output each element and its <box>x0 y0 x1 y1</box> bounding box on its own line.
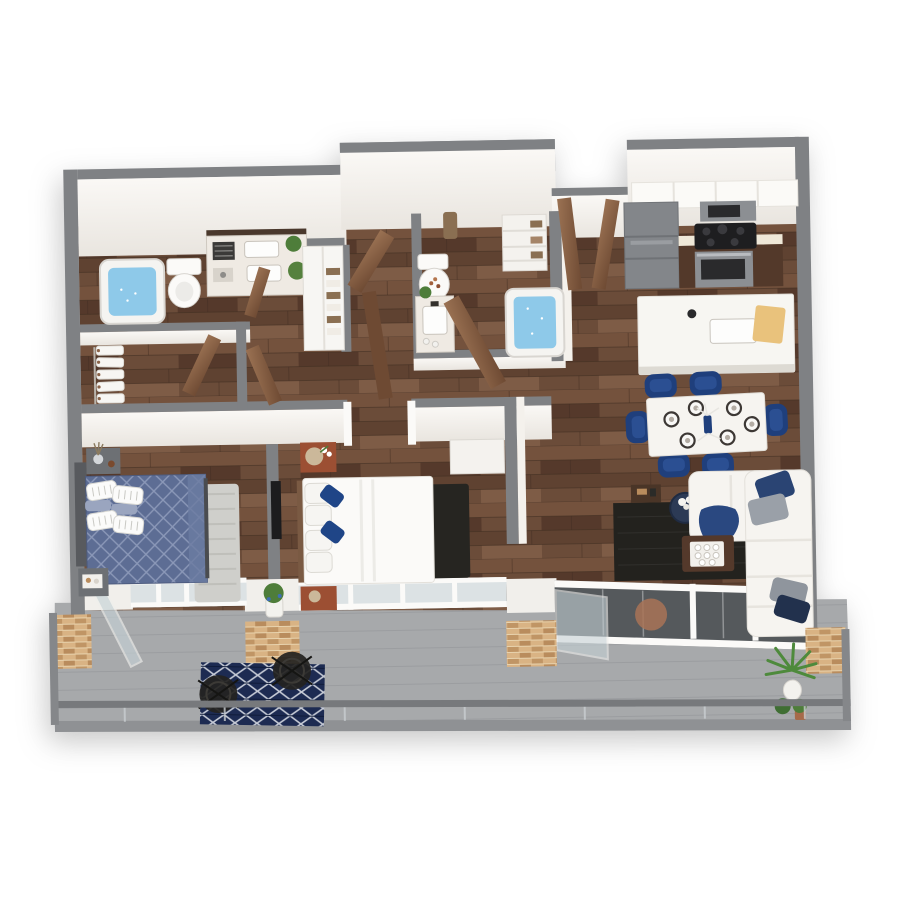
dining-chair <box>689 371 722 397</box>
open-glass-door-living <box>556 589 608 660</box>
brick-pier <box>805 627 846 674</box>
cherry-nightstand-north <box>300 442 337 473</box>
place-setting <box>664 412 679 427</box>
coffee-table <box>682 535 735 572</box>
microwave <box>700 201 756 222</box>
linen-shelf <box>502 214 547 271</box>
floorplan-svg <box>0 0 900 900</box>
place-setting <box>720 430 735 445</box>
hall-closet <box>303 246 345 351</box>
wall-towel <box>443 212 457 239</box>
wall-cap-entry <box>552 187 632 196</box>
place-setting <box>680 433 695 448</box>
tv-panel <box>271 481 282 539</box>
place-setting <box>689 401 704 416</box>
toilet <box>167 258 202 308</box>
dining-chair <box>644 373 677 399</box>
cherry-nightstand-south <box>301 586 337 611</box>
place-setting <box>744 417 759 432</box>
bathtub2 <box>505 288 564 357</box>
cutting-board <box>752 305 786 344</box>
place-setting <box>727 401 742 416</box>
walk-in-closet <box>94 346 124 405</box>
brick-pier <box>506 620 557 667</box>
console-table <box>631 484 661 503</box>
refrigerator <box>624 202 679 289</box>
bedroom-bench <box>78 568 108 597</box>
flower-pot <box>263 583 284 617</box>
island-sink <box>710 319 756 344</box>
bathtub-water <box>108 267 157 316</box>
kitchen-island <box>638 294 795 375</box>
floorplan-image: 3D rendered two-bedroom apartment floor … <box>0 0 900 900</box>
white-dresser <box>450 439 505 474</box>
vanity2 <box>415 286 454 353</box>
